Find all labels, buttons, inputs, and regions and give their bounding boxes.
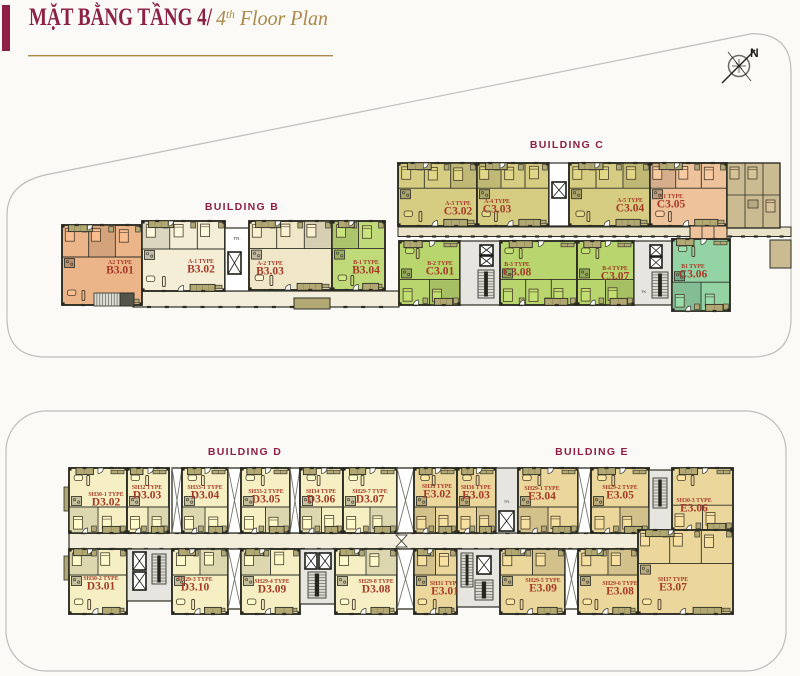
svg-text:E3.01: E3.01 — [431, 586, 459, 598]
svg-text:B3.03: B3.03 — [256, 266, 284, 278]
svg-text:C3.08: C3.08 — [503, 267, 532, 279]
svg-text:C3.03: C3.03 — [483, 204, 512, 216]
svg-text:BUILDING D: BUILDING D — [208, 446, 282, 458]
svg-text:D3.05: D3.05 — [252, 494, 281, 506]
svg-text:D3.07: D3.07 — [356, 494, 385, 506]
svg-text:BUILDING C: BUILDING C — [530, 139, 604, 151]
svg-text:D3.03: D3.03 — [133, 490, 162, 502]
svg-text:E3.05: E3.05 — [606, 490, 634, 502]
svg-text:TR.: TR. — [504, 499, 510, 504]
svg-text:MẶT BẰNG TẦNG 4/: MẶT BẰNG TẦNG 4/ — [29, 2, 213, 31]
svg-text:C3.07: C3.07 — [601, 271, 630, 283]
svg-text:N: N — [750, 46, 759, 60]
svg-text:D3.06: D3.06 — [307, 494, 336, 506]
svg-text:C3.01: C3.01 — [426, 266, 455, 278]
svg-text:C3.06: C3.06 — [679, 269, 708, 281]
svg-text:E3.02: E3.02 — [423, 489, 451, 501]
svg-text:BUILDING E: BUILDING E — [555, 446, 629, 458]
svg-text:E3.03: E3.03 — [462, 490, 490, 502]
svg-text:C3.02: C3.02 — [444, 206, 473, 218]
svg-text:TK: TK — [641, 289, 646, 294]
svg-text:E3.08: E3.08 — [606, 586, 634, 598]
svg-text:C3.04: C3.04 — [616, 203, 645, 215]
svg-text:B3.04: B3.04 — [352, 265, 380, 277]
svg-text:D3.10: D3.10 — [181, 582, 210, 594]
svg-text:E3.06: E3.06 — [680, 503, 708, 515]
svg-text:TR.: TR. — [233, 236, 240, 241]
svg-text:D3.01: D3.01 — [87, 581, 116, 593]
svg-text:E3.09: E3.09 — [529, 583, 557, 595]
svg-text:B3.01: B3.01 — [106, 265, 134, 277]
svg-text:D3.02: D3.02 — [92, 497, 121, 509]
svg-text:B3.02: B3.02 — [187, 264, 215, 276]
svg-text:BUILDING B: BUILDING B — [205, 201, 279, 213]
svg-text:D3.04: D3.04 — [191, 490, 220, 502]
svg-text:E3.04: E3.04 — [528, 491, 556, 503]
svg-text:C3.05: C3.05 — [657, 199, 686, 211]
svg-text:D3.09: D3.09 — [258, 584, 287, 596]
svg-text:E3.07: E3.07 — [659, 582, 687, 594]
svg-text:D3.08: D3.08 — [362, 584, 391, 596]
